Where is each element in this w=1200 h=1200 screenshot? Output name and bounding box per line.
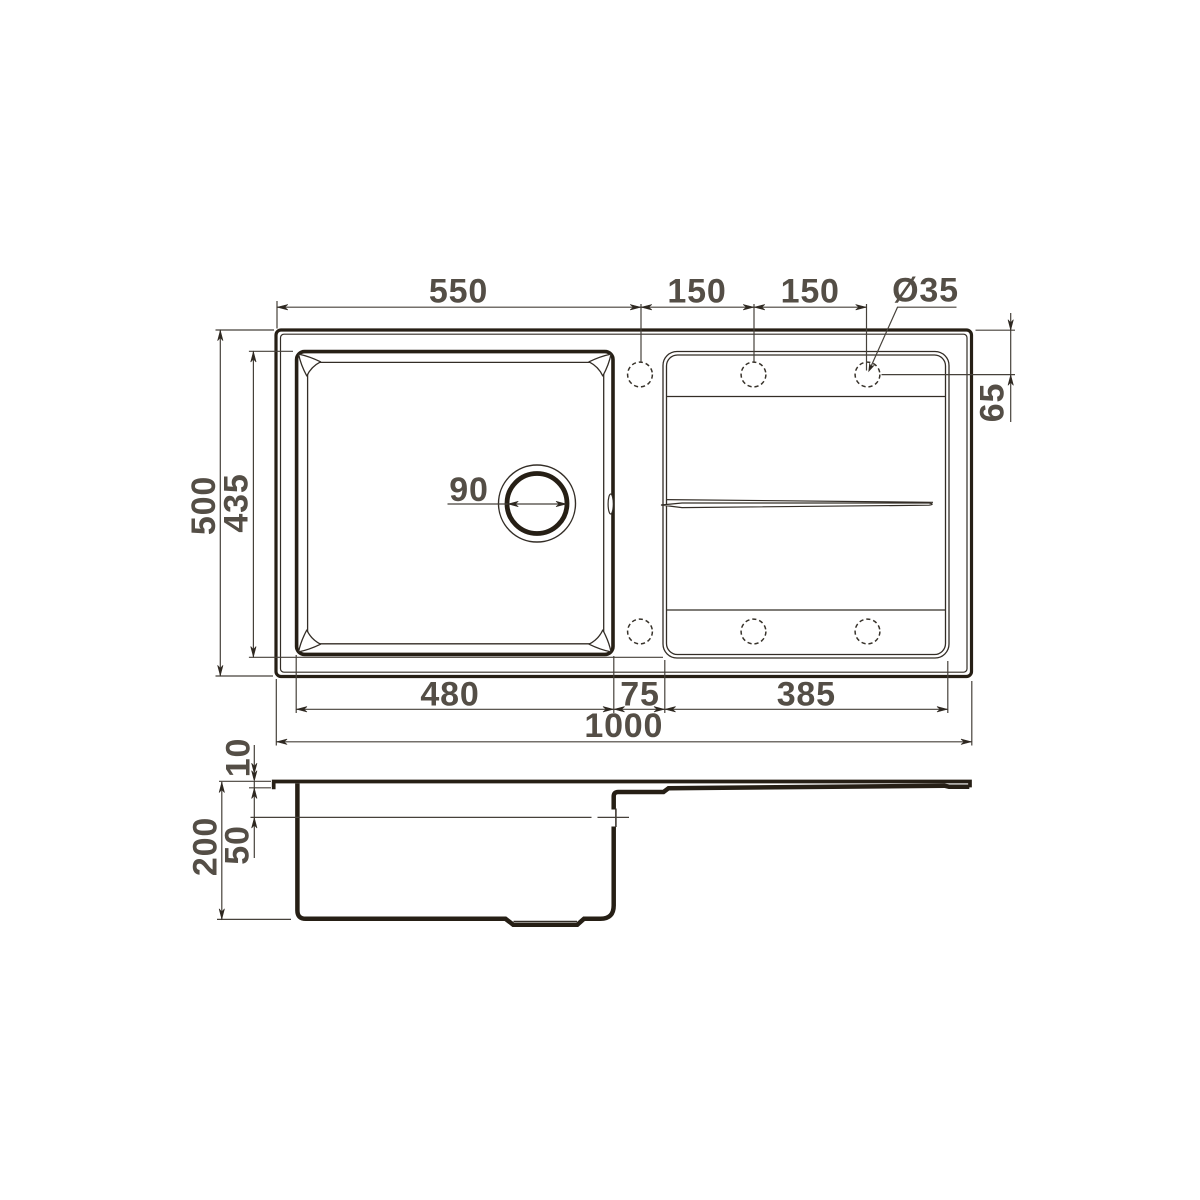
svg-text:Ø35: Ø35: [892, 271, 959, 309]
svg-text:150: 150: [667, 272, 726, 310]
svg-text:65: 65: [973, 383, 1011, 422]
svg-text:435: 435: [217, 473, 255, 532]
svg-text:550: 550: [429, 272, 488, 310]
svg-text:385: 385: [777, 675, 836, 713]
svg-text:90: 90: [449, 471, 488, 509]
svg-text:480: 480: [420, 675, 479, 713]
svg-text:1000: 1000: [584, 707, 663, 745]
svg-text:200: 200: [186, 817, 224, 876]
svg-text:10: 10: [220, 738, 258, 777]
svg-text:150: 150: [781, 272, 840, 310]
